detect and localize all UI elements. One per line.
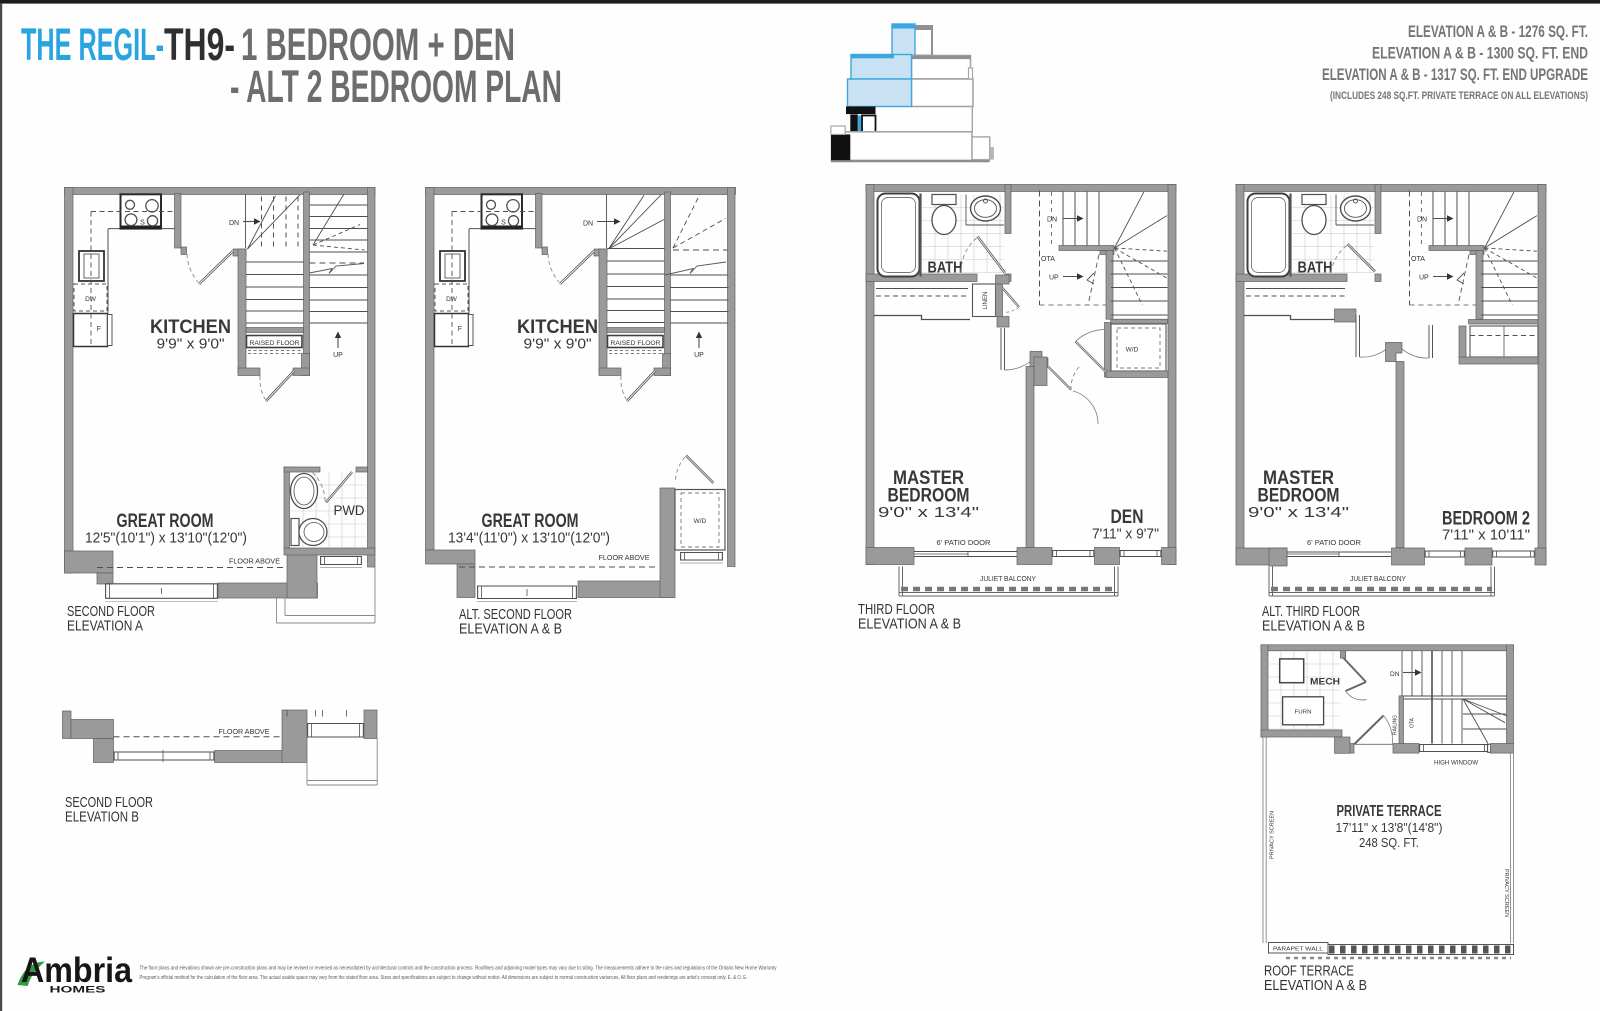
- svg-text:17'11" x 13'8"(14'8"): 17'11" x 13'8"(14'8"): [1336, 820, 1443, 835]
- svg-text:S: S: [501, 219, 506, 226]
- svg-text:ELEVATION A & B: ELEVATION A & B: [1264, 977, 1367, 994]
- svg-text:DN: DN: [583, 221, 593, 228]
- svg-text:7'11" x 9'7": 7'11" x 9'7": [1092, 527, 1159, 543]
- svg-text:BEDROOM 2: BEDROOM 2: [1442, 509, 1530, 530]
- svg-text:BEDROOM: BEDROOM: [1258, 486, 1340, 507]
- svg-text:GREAT ROOM: GREAT ROOM: [482, 511, 579, 532]
- svg-text:13'4"(11'0") x 13'10"(12'0"): 13'4"(11'0") x 13'10"(12'0"): [448, 531, 610, 547]
- svg-text:(INCLUDES 248 SQ.FT. PRIVATE T: (INCLUDES 248 SQ.FT. PRIVATE TERRACE ON …: [1330, 90, 1588, 102]
- svg-text:ELEVATION A & B - 1317 SQ. FT.: ELEVATION A & B - 1317 SQ. FT. END UPGRA…: [1322, 66, 1588, 84]
- svg-text:Program's official method for: Program's official method for the calcul…: [140, 975, 748, 981]
- svg-text:PWD: PWD: [334, 503, 365, 518]
- svg-text:OTA: OTA: [1041, 256, 1055, 263]
- svg-text:HIGH WINDOW: HIGH WINDOW: [1434, 761, 1478, 767]
- svg-text:The floor plans and elevations: The floor plans and elevations shown are…: [140, 966, 777, 972]
- svg-text:PRIVACY SCREEN: PRIVACY SCREEN: [1503, 869, 1509, 917]
- svg-text:LINEN: LINEN: [983, 292, 989, 310]
- svg-text:THE REGIL-: THE REGIL-: [21, 19, 164, 70]
- svg-text:DN: DN: [1047, 217, 1057, 224]
- svg-text:W/D: W/D: [1126, 347, 1139, 354]
- svg-text:9'9" x 9'0": 9'9" x 9'0": [524, 337, 592, 353]
- svg-text:9'0" x 13'4": 9'0" x 13'4": [878, 505, 979, 521]
- svg-text:ELEVATION A: ELEVATION A: [67, 618, 143, 635]
- svg-text:PRIVACY SCREEN: PRIVACY SCREEN: [1270, 811, 1276, 859]
- svg-text:FLOOR ABOVE: FLOOR ABOVE: [219, 727, 270, 736]
- svg-text:JULIET BALCONY: JULIET BALCONY: [980, 576, 1036, 583]
- svg-text:PRIVATE TERRACE: PRIVATE TERRACE: [1337, 803, 1442, 820]
- svg-text:ELEVATION A & B: ELEVATION A & B: [1262, 618, 1365, 635]
- svg-text:S: S: [140, 219, 145, 226]
- svg-text:FLOOR ABOVE: FLOOR ABOVE: [599, 553, 650, 562]
- svg-text:MECH: MECH: [1310, 677, 1340, 688]
- svg-text:HOMES: HOMES: [50, 985, 106, 996]
- svg-text:12'5"(10'1") x 13'10"(12'0"): 12'5"(10'1") x 13'10"(12'0"): [85, 531, 247, 547]
- svg-text:RAILING: RAILING: [1393, 715, 1399, 735]
- svg-text:RAISED FLOOR: RAISED FLOOR: [250, 340, 300, 347]
- svg-text:BEDROOM: BEDROOM: [888, 486, 970, 507]
- svg-text:FLOOR ABOVE: FLOOR ABOVE: [229, 557, 280, 566]
- svg-text:6' PATIO DOOR: 6' PATIO DOOR: [1307, 538, 1362, 547]
- svg-text:9'9" x 9'0": 9'9" x 9'0": [157, 337, 225, 353]
- svg-text:KITCHEN: KITCHEN: [150, 317, 231, 338]
- svg-text:BATH: BATH: [1298, 260, 1333, 277]
- svg-text:UP: UP: [333, 352, 343, 359]
- svg-text:TH9-: TH9-: [164, 19, 235, 70]
- svg-text:6' PATIO DOOR: 6' PATIO DOOR: [937, 538, 992, 547]
- svg-text:W/D: W/D: [694, 518, 707, 525]
- svg-text:DN: DN: [1417, 217, 1427, 224]
- svg-text:UP: UP: [1419, 275, 1429, 282]
- svg-text:OTA: OTA: [1411, 256, 1425, 263]
- svg-text:9'0" x 13'4": 9'0" x 13'4": [1248, 505, 1349, 521]
- svg-text:UP: UP: [1049, 275, 1059, 282]
- svg-text:DN: DN: [1390, 671, 1400, 678]
- svg-text:BATH: BATH: [928, 260, 963, 277]
- svg-text:GREAT ROOM: GREAT ROOM: [117, 511, 214, 532]
- svg-text:FURN: FURN: [1295, 710, 1312, 716]
- svg-text:UP: UP: [694, 352, 704, 359]
- svg-text:KITCHEN: KITCHEN: [517, 317, 598, 338]
- svg-text:7'11" x 10'11": 7'11" x 10'11": [1442, 528, 1530, 544]
- svg-text:ELEVATION A & B - 1300 SQ. FT.: ELEVATION A & B - 1300 SQ. FT. END: [1372, 45, 1588, 63]
- svg-text:- ALT 2 BEDROOM PLAN: - ALT 2 BEDROOM PLAN: [230, 61, 562, 112]
- svg-text:F: F: [97, 326, 101, 333]
- svg-text:JULIET BALCONY: JULIET BALCONY: [1350, 576, 1406, 583]
- svg-text:ELEVATION B: ELEVATION B: [65, 809, 139, 826]
- svg-text:RAISED FLOOR: RAISED FLOOR: [611, 340, 661, 347]
- svg-text:ELEVATION A & B: ELEVATION A & B: [858, 616, 961, 633]
- svg-text:ELEVATION A & B: ELEVATION A & B: [459, 621, 562, 638]
- svg-text:ELEVATION A & B - 1276 SQ. FT: ELEVATION A & B - 1276 SQ. FT.: [1408, 23, 1588, 41]
- svg-text:DN: DN: [229, 220, 239, 227]
- svg-text:248 SQ. FT.: 248 SQ. FT.: [1359, 835, 1419, 850]
- svg-text:PARAPET WALL: PARAPET WALL: [1273, 947, 1323, 953]
- svg-text:DEN: DEN: [1111, 507, 1144, 528]
- svg-text:OTA: OTA: [1410, 717, 1416, 728]
- svg-text:F: F: [458, 326, 462, 333]
